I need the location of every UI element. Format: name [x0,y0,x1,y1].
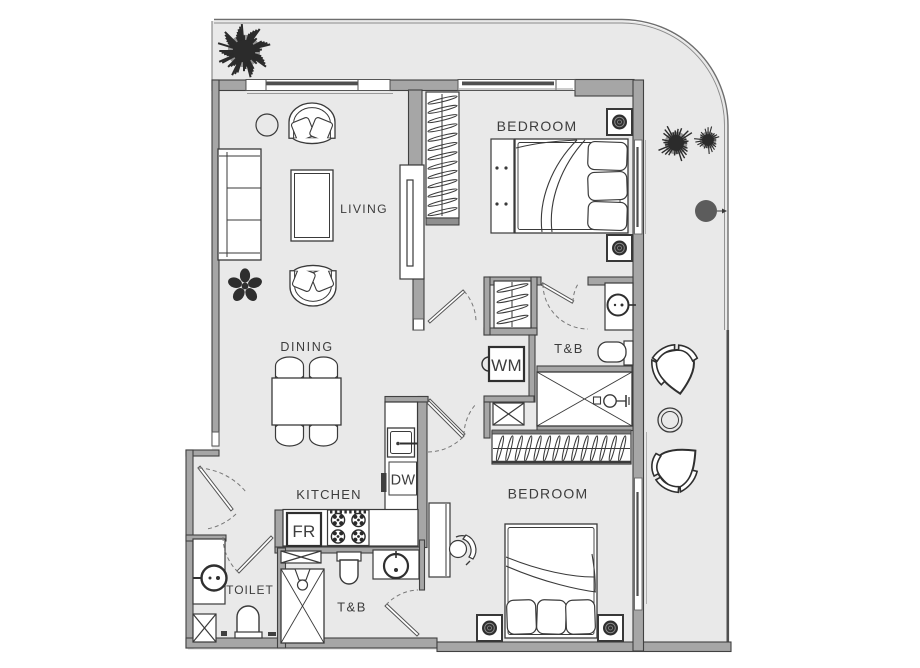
svg-text:T&B: T&B [337,600,367,615]
svg-text:LIVING: LIVING [340,202,388,216]
svg-text:BEDROOM: BEDROOM [497,118,578,134]
svg-text:T&B: T&B [554,341,584,356]
svg-text:FR: FR [292,522,315,541]
svg-text:KITCHEN: KITCHEN [296,487,361,502]
svg-text:TOILET: TOILET [226,583,274,597]
svg-text:WM: WM [491,356,522,375]
svg-text:DW: DW [391,473,416,489]
svg-text:DINING: DINING [280,340,333,354]
svg-text:BEDROOM: BEDROOM [508,486,589,502]
